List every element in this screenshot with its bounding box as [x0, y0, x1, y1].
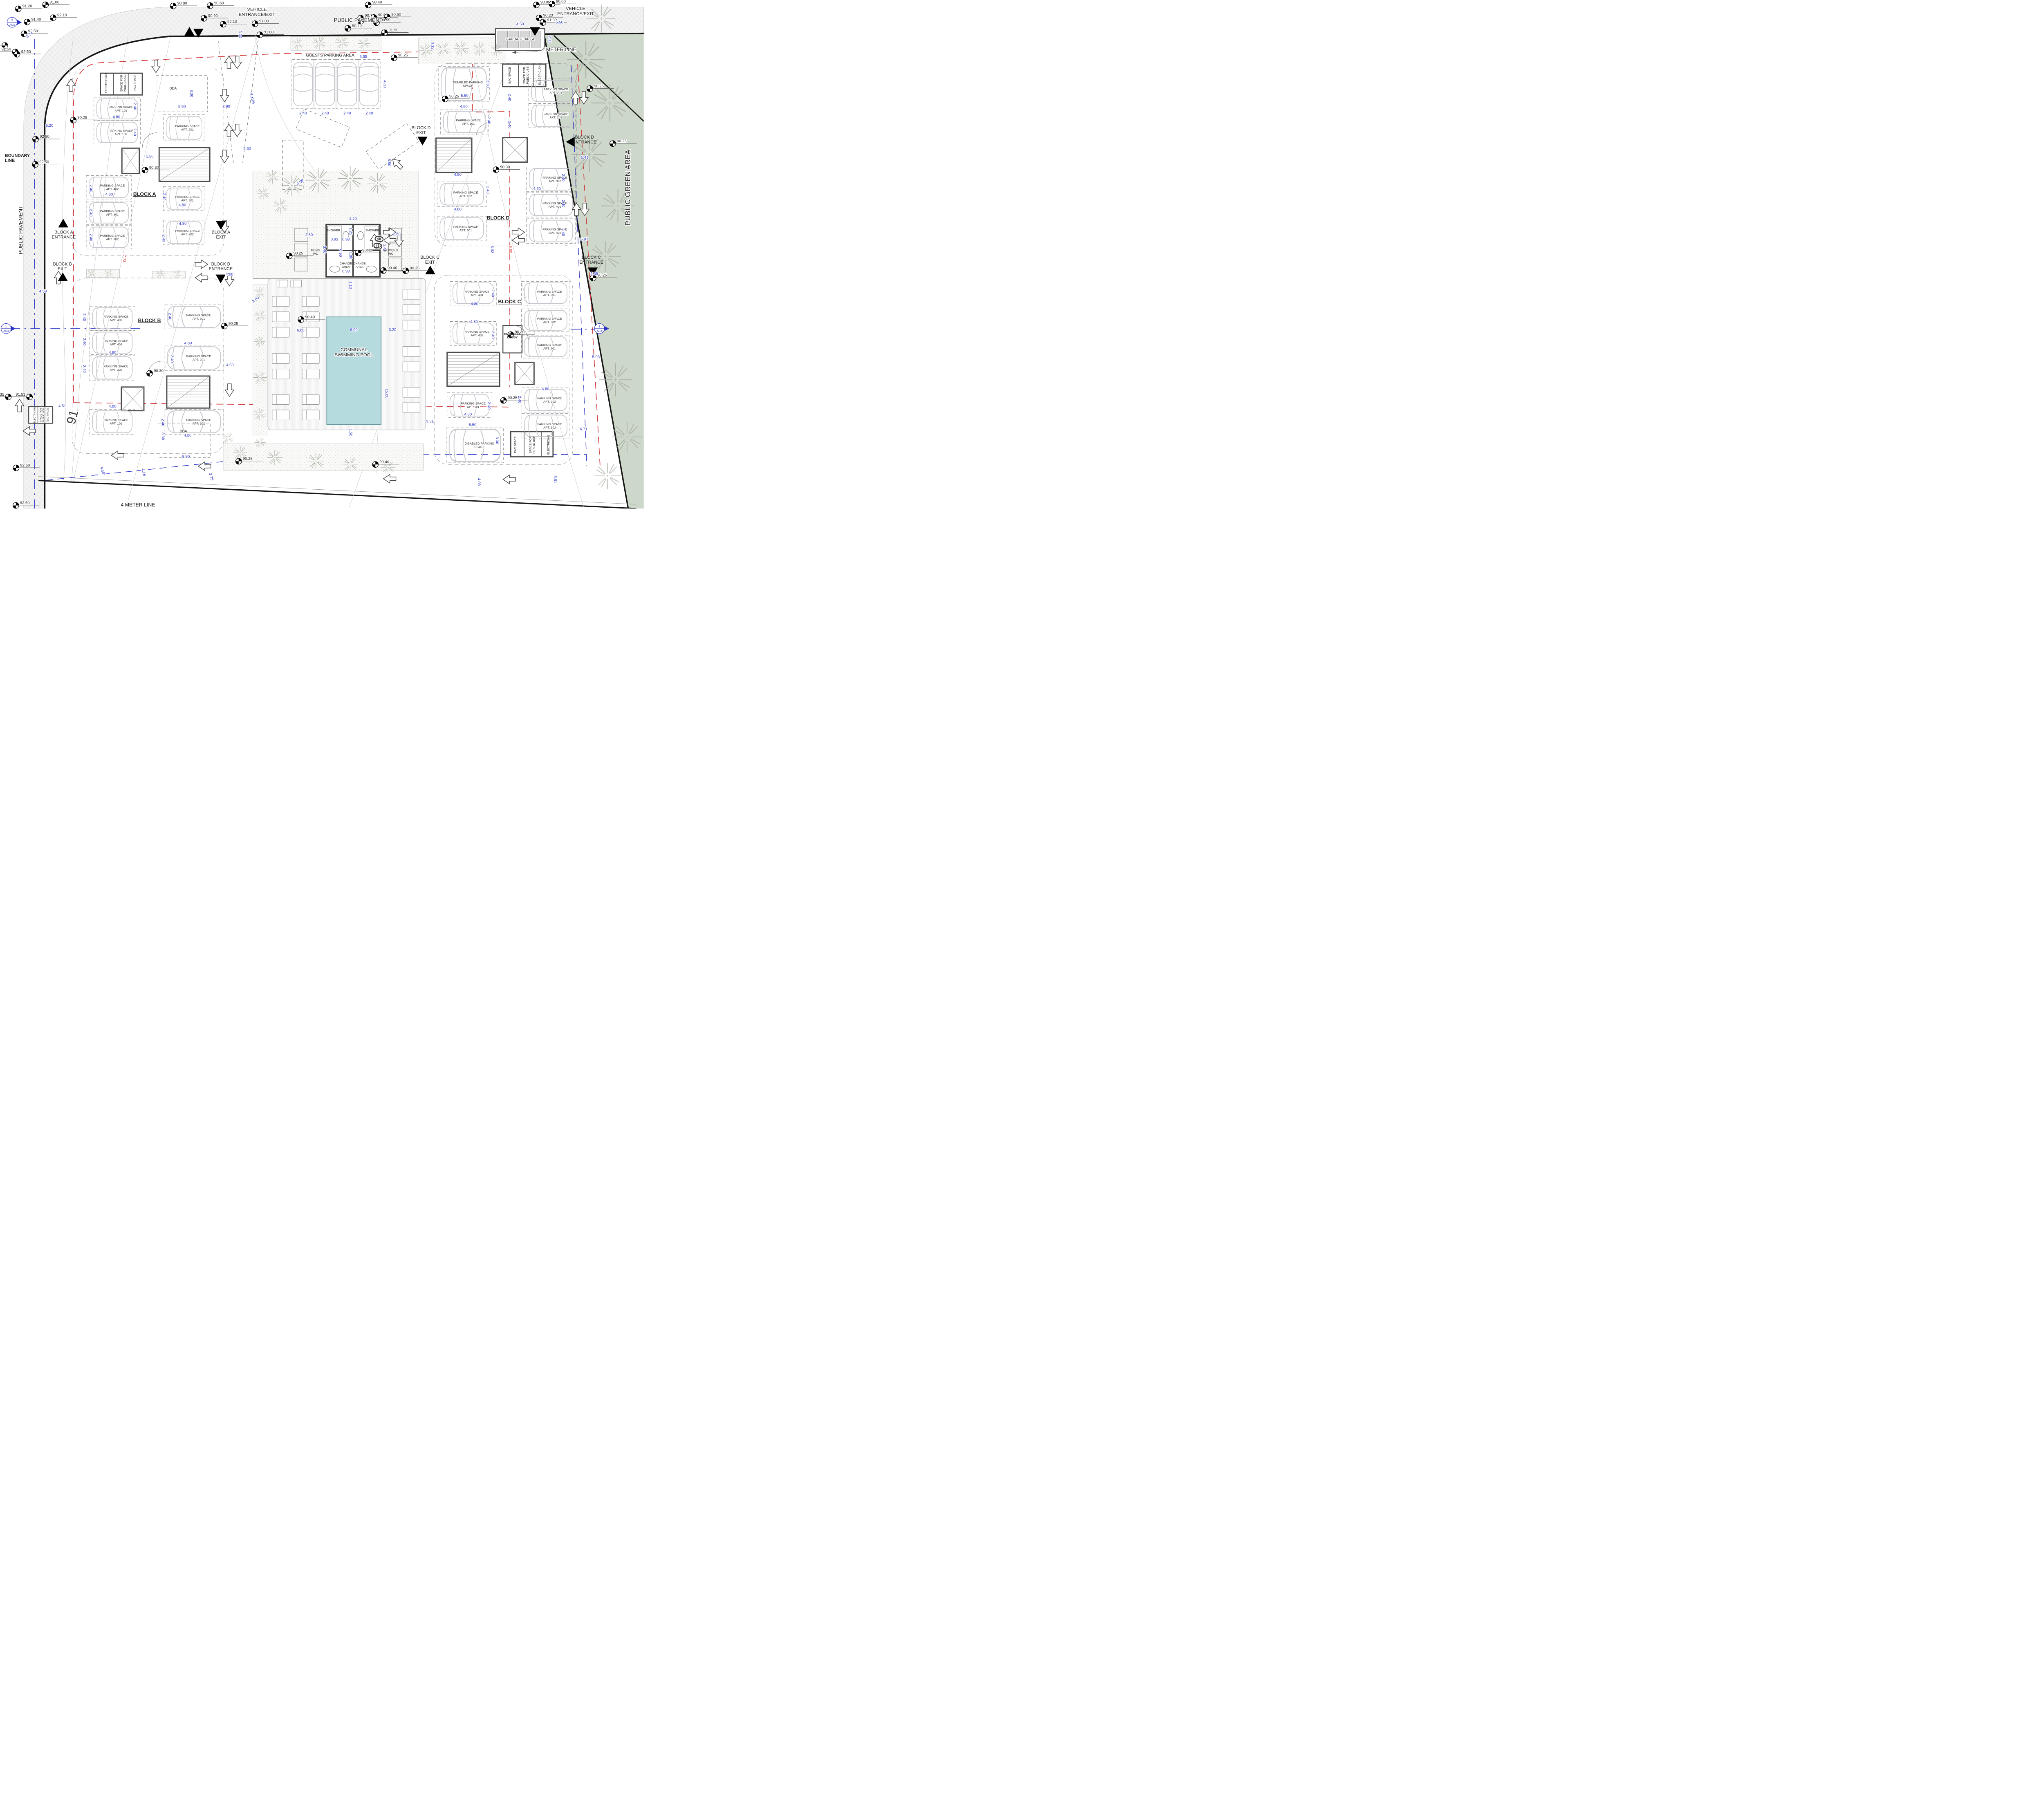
spot-elevation-value: 92.50 [20, 501, 30, 505]
dimension-label: 3.30 [486, 80, 490, 88]
dimension-label: 4.59 [39, 289, 47, 294]
sun-lounger [277, 280, 288, 287]
dimension-label: 6.50 [508, 246, 513, 253]
dimension-label: 2.40 [82, 314, 87, 321]
area-label: 4 METER LINE [542, 47, 576, 52]
sun-lounger [302, 394, 319, 405]
area-label: PUBLIC PAVEMENT [18, 206, 24, 254]
area-label: ELECTRICIAN [104, 74, 108, 93]
spot-elevation-value: 92.50 [39, 160, 49, 164]
area-label: PUBLIC PAVEMENT [334, 17, 383, 23]
spot-elevation-value: 90.25 [398, 53, 408, 58]
spot-elevation-value: 91.50 [389, 28, 399, 33]
dimension-label: 4.80 [184, 341, 192, 345]
dimension-label: 2.40 [299, 111, 307, 116]
spot-elevation-value: 91.40 [31, 17, 41, 22]
dimension-label: 4.80 [454, 207, 462, 212]
dimension-label: 3.90 [222, 105, 230, 109]
area-label: DDA [170, 86, 177, 90]
spot-elevation-value: 90.90 [208, 13, 218, 18]
dimension-label: 2.40 [161, 419, 165, 426]
dimension-label: 4.80 [470, 320, 478, 324]
dimension-label: 2.40 [88, 185, 93, 193]
tree-icon [454, 41, 469, 56]
spot-elevation-value: 90.25 [508, 396, 518, 400]
dimension-label: 3.30 [161, 432, 165, 440]
dimension-label: 4.80 [179, 203, 186, 207]
spot-elevation-value: 90.25 [594, 84, 604, 89]
dimension-label: 2.40 [132, 128, 137, 136]
dimension-label: 4.80 [460, 105, 467, 109]
tree-icon [473, 42, 486, 56]
dimension-label: 4.80 [109, 351, 117, 355]
area-label: SHOWER [326, 229, 341, 232]
green-area-tree-icon [587, 4, 616, 33]
area-label: SPACE FORPUBLIC USE [120, 74, 127, 92]
dimension-label: 3.61 [553, 475, 558, 483]
spot-elevation-value: 91.59 [2, 47, 11, 52]
tree-icon [335, 36, 349, 49]
dimension-label: 2.11 [547, 36, 552, 43]
dimension-label: 2.40 [82, 338, 87, 346]
sun-lounger [403, 387, 420, 397]
dimension-label: 2.40 [343, 111, 351, 116]
dimension-label: 4.80 [113, 115, 121, 119]
dimension-label: 2.40 [167, 313, 172, 320]
dimension-label: 6.55 [360, 54, 368, 59]
spot-elevation-value: 90.25 [243, 457, 253, 461]
spot-elevation-value: 92.50 [20, 463, 30, 468]
dimension-label: 4.20 [349, 217, 356, 221]
dimension-label: 5.20 [46, 123, 54, 128]
dimension-label: 5.50 [469, 423, 477, 427]
sun-lounger [403, 403, 420, 413]
dimension-label: 2.40 [486, 186, 490, 194]
dimension-label: 8.50 [387, 159, 391, 166]
dimension-label: 4.80 [454, 173, 462, 177]
dimension-label: 3.30 [189, 90, 193, 97]
dimension-label: 5.50 [178, 105, 186, 109]
spot-elevation-value: 90.25 [617, 139, 627, 143]
area-label: BLOCK A [133, 191, 156, 197]
dimension-label: 2.40 [365, 111, 373, 116]
sun-lounger [302, 296, 319, 307]
area-label: EAC SPACE [133, 74, 137, 91]
sun-lounger [403, 362, 420, 372]
dimension-label: 5.50 [556, 20, 564, 25]
dimension-label: 15.00 [384, 389, 389, 399]
sun-lounger [403, 346, 420, 356]
area-label: BLOCK BENTRANCE [209, 262, 233, 271]
area-label: BLOCK B [138, 318, 161, 323]
dimension-label: 3.20 [389, 328, 397, 332]
sun-lounger [302, 327, 319, 337]
dimension-label: 2.40 [170, 355, 174, 363]
spot-elevation-value: 90.23 [543, 13, 553, 18]
dimension-label: 2.40 [161, 193, 166, 201]
area-label: SHOWER [365, 229, 380, 232]
spot-elevation-value: 90.00 [556, 0, 566, 4]
spot-elevation-value: 90.20 [352, 24, 362, 28]
spot-elevation-value: 92.10 [57, 13, 67, 18]
green-area-tree-icon [599, 363, 632, 397]
area-label: ELECTRICIAN [34, 407, 36, 423]
sun-lounger [272, 312, 289, 322]
area-label: GUESTS PARKING AREA [306, 54, 354, 58]
dimension-label: 4.80 [382, 80, 387, 88]
spot-elevation-value: 90.80 [177, 1, 187, 6]
sun-lounger [403, 289, 420, 299]
section-sheet: A03 [9, 23, 15, 27]
spot-elevation-value: 90.25 [597, 273, 607, 278]
tree-icon [253, 371, 267, 385]
dimension-label: 5.50 [182, 455, 190, 459]
spot-elevation-value: 90.30 [154, 369, 164, 373]
dimension-label: 4.80 [542, 387, 549, 391]
spot-elevation-value: 91.41 [0, 41, 1, 45]
dimension-label: 3.12 [430, 42, 435, 49]
tree-icon [255, 437, 266, 448]
dimension-label: 0.93 [342, 237, 350, 242]
dimension-label: 2.40 [491, 331, 495, 339]
dimension-label: 0.93 [331, 237, 338, 242]
sun-lounger [302, 410, 319, 420]
area-label: EAC SPACE [508, 67, 511, 83]
sun-lounger [403, 305, 420, 315]
dimension-label: 2.40 [486, 402, 491, 410]
spot-elevation-value: 90.40 [379, 460, 389, 464]
dimension-label: 5.97 [580, 237, 588, 242]
entrance-lobby-room [503, 325, 522, 353]
dimension-label: 4.80 [533, 187, 541, 191]
area-label: PUBLIC GREEN AREA [624, 150, 632, 226]
dimension-label: 2.80 [393, 232, 401, 237]
dimension-label: 5.50 [243, 147, 251, 151]
sun-lounger [302, 369, 319, 379]
dimension-label: 2.40 [561, 174, 565, 181]
section-number: 1 [5, 325, 7, 328]
dimension-label: 5.39 [590, 272, 598, 276]
area-label: SPACE FORPUBLIC USE [522, 66, 529, 84]
area-label: BLOCK AENTRANCE [52, 230, 76, 240]
area-label: EAC SPACE [47, 408, 49, 421]
spot-elevation-value: 90.25 [410, 266, 419, 271]
spot-elevation-value: 90.60 [214, 1, 224, 5]
dimension-label: 4.80 [464, 412, 472, 417]
spot-elevation-value: 90.40 [372, 0, 382, 5]
dimension-label: 4.50 [516, 22, 524, 27]
area-label: BLOCK C [498, 299, 521, 305]
dimension-label: 1.25 [348, 228, 353, 235]
area-label: ELECTRICIAN [547, 435, 550, 455]
sun-lounger [272, 327, 289, 337]
sun-lounger [272, 296, 289, 307]
dimension-label: 3.51 [426, 419, 434, 424]
spot-elevation-value: 91.35 [0, 392, 4, 397]
spot-elevation-value: 91.53 [16, 392, 25, 397]
dimension-label: 4.60 [226, 363, 234, 367]
dimension-label: 2.40 [491, 289, 495, 297]
dimension-label: 3.00 [238, 31, 242, 38]
spot-elevation-value: 90.25 [77, 115, 87, 120]
dimension-label: 1.50 [146, 154, 153, 159]
spot-elevation-value: 90.40 [305, 315, 315, 319]
tree-icon [306, 168, 330, 193]
area-label: SPACE FORPUBLIC USE [529, 436, 536, 453]
dimension-label: 5.41 [581, 155, 589, 160]
dimension-label: 0.90 [338, 249, 343, 257]
area-label: EAC SPACE [513, 436, 517, 453]
sun-lounger [302, 354, 319, 364]
dimension-label: 2.40 [517, 396, 522, 403]
spot-elevation-value: 92.50 [21, 49, 31, 54]
dimension-label: 6.00 [350, 328, 358, 332]
spot-elevation-value: 90.25 [294, 251, 303, 256]
dimension-label: 2.40 [561, 200, 565, 208]
spot-elevation-value: 92.10 [227, 20, 237, 24]
dimension-label: 2.40 [507, 121, 511, 129]
dimension-label: 4.03 [477, 478, 481, 486]
dimension-label: 4.51 [58, 404, 66, 408]
dimension-label: 2.40 [132, 103, 137, 110]
dimension-label: 4.80 [179, 222, 187, 226]
dimension-label: 2.80 [305, 233, 313, 237]
area-label: ELECTRICIAN [538, 65, 542, 85]
dimension-label: 2.40 [88, 233, 93, 241]
spot-elevation-value: 91.00 [547, 18, 557, 22]
area-label: 4 METER LINE [121, 502, 155, 508]
spot-elevation-value: 91.00 [259, 19, 269, 24]
dimension-label: 2.40 [561, 229, 565, 236]
spot-elevation-value: 90.30 [500, 165, 510, 170]
dimension-label: 7.73 [122, 255, 126, 262]
spot-elevation-value: 90.25 [229, 321, 238, 326]
spot-elevation-value: 90.40 [362, 249, 372, 253]
section-sheet: A03 [3, 329, 9, 333]
dimension-label: 4.80 [471, 302, 479, 306]
spot-elevation-value: 91.00 [49, 0, 59, 4]
dimension-label: 2.40 [88, 209, 93, 216]
dimension-label: 6.71 [580, 427, 587, 431]
dimension-label: 2.40 [486, 117, 491, 124]
section-number: 2 [11, 18, 13, 22]
dimension-label: 1.80 [348, 252, 353, 260]
dimension-label: 4.80 [109, 404, 117, 409]
spot-elevation-value: 90.40 [388, 266, 397, 271]
area-label: 90 [370, 234, 387, 251]
area-label: BLOCK D [486, 215, 509, 221]
section-number: 1 [598, 325, 600, 328]
spot-elevation-value: 91.20 [22, 4, 32, 9]
sun-lounger [291, 280, 302, 287]
tree-icon [435, 41, 450, 56]
dimension-label: 2.40 [507, 94, 511, 101]
dimension-label: 4.80 [105, 193, 113, 197]
dimension-label: 3.40 [322, 246, 327, 253]
dimension-label: 5.50 [461, 94, 468, 98]
spot-elevation-value: 92.50 [40, 134, 49, 139]
communal-swimming-pool [327, 317, 381, 424]
dimension-label: 6.92 [490, 246, 494, 253]
dimension-label: 4.80 [184, 433, 191, 438]
dimension-label: 5.93 [592, 355, 600, 359]
area-label: DDA [180, 429, 187, 433]
section-sheet: A03 [597, 329, 602, 333]
dimension-label: 4.60 [226, 272, 233, 277]
sun-lounger [272, 369, 289, 379]
tree-icon [491, 44, 503, 56]
site-plan-drawing: PARKING SPACEAPT. 101PARKING SPACEAPT. 1… [0, 0, 644, 509]
dimension-label: 1.10 [348, 281, 353, 289]
dimension-label: 2.40 [321, 111, 329, 116]
area-label: BLOCK DENTRANCE [573, 135, 596, 145]
dimension-label: 3.30 [495, 437, 499, 444]
dimension-label: 1.50 [348, 429, 353, 437]
spot-elevation-value: 90.25 [449, 94, 459, 99]
area-label: BLOCK CENTRANCE [579, 255, 603, 265]
dimension-label: 0.93 [342, 269, 350, 274]
area-label: GARBAGE AREA [506, 37, 535, 41]
sun-lounger [272, 394, 289, 405]
sun-lounger [272, 410, 289, 420]
dimension-label: 6.80 [297, 328, 305, 333]
dimension-label: 2.40 [161, 235, 166, 242]
dimension-label: 2.40 [82, 365, 87, 373]
spot-elevation-value: 91.00 [264, 30, 274, 35]
sun-lounger [272, 354, 289, 364]
tree-icon [266, 170, 280, 184]
spot-elevation-value: 90.50 [391, 12, 401, 17]
spot-elevation-value: 90.30 [149, 166, 159, 170]
tree-icon [338, 166, 362, 190]
sun-lounger [403, 320, 420, 330]
